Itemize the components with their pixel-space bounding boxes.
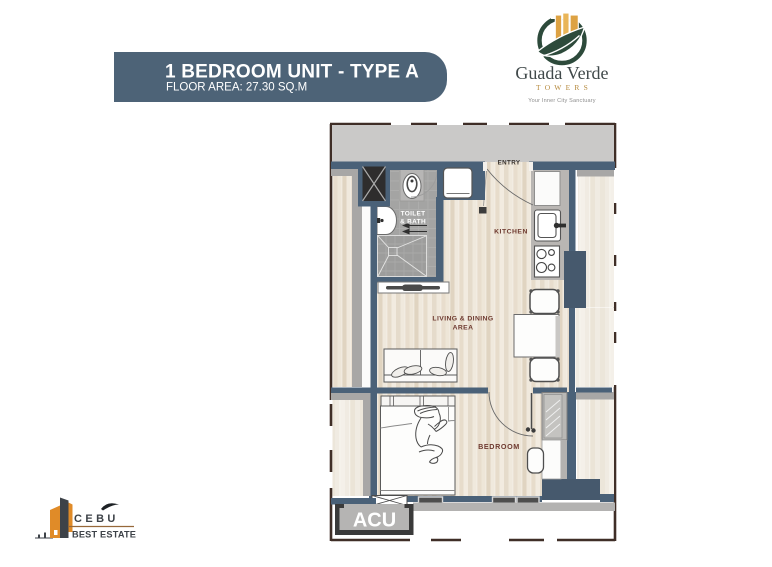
svg-text:AREA: AREA [453,325,474,332]
svg-text:BEDROOM: BEDROOM [478,442,520,451]
svg-text:& BATH: & BATH [400,219,426,226]
svg-text:LIVING & DINING: LIVING & DINING [432,316,493,323]
svg-text:TOILET: TOILET [401,211,426,218]
svg-text:1 BEDROOM UNIT - TYPE A: 1 BEDROOM UNIT - TYPE A [165,62,419,83]
svg-text:ENTRY: ENTRY [498,160,521,167]
svg-text:Guada Verde: Guada Verde [515,63,608,83]
svg-text:FLOOR AREA: 27.30 SQ.M: FLOOR AREA: 27.30 SQ.M [166,82,307,94]
svg-text:KITCHEN: KITCHEN [494,229,528,236]
svg-text:BEST ESTATE: BEST ESTATE [72,530,136,540]
svg-text:ACU: ACU [353,510,396,532]
svg-text:CEBU: CEBU [74,513,119,525]
svg-text:TOWERS: TOWERS [536,83,592,92]
svg-text:Your Inner City Sanctuary: Your Inner City Sanctuary [528,98,596,104]
